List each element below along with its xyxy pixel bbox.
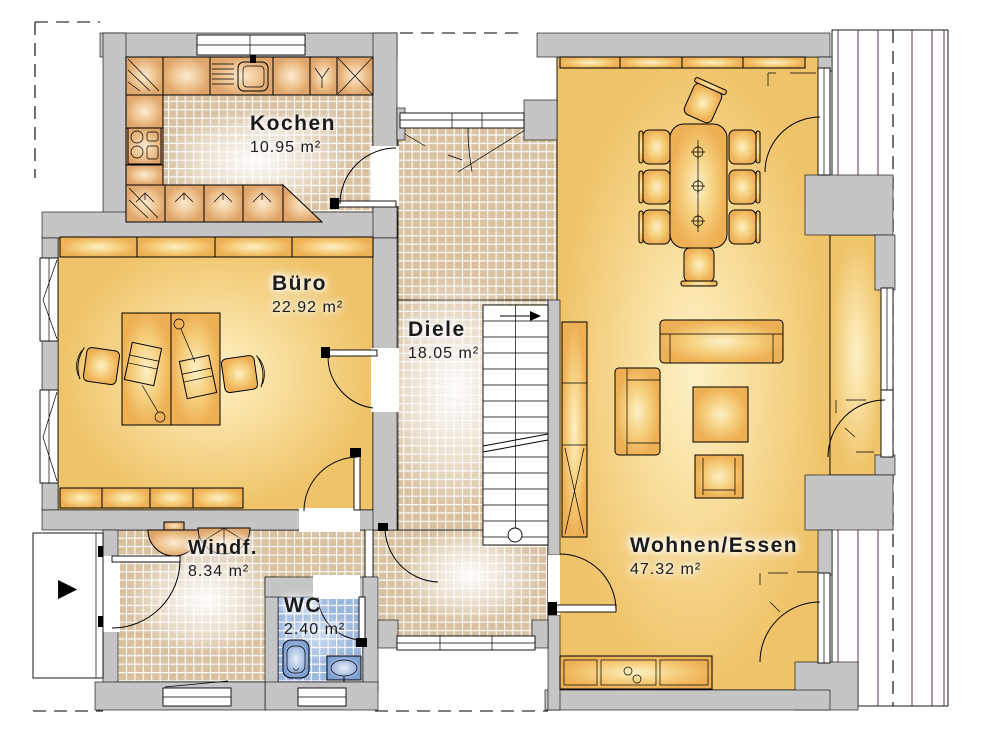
room-name: Kochen: [250, 112, 336, 136]
buero-window-2: [40, 390, 58, 483]
room-label-buero: Büro 22.92 m²: [272, 272, 343, 317]
room-area: 2.40 m²: [284, 621, 345, 639]
terrace-door-bottom-glazing: [818, 573, 830, 663]
desk-right-icon: [171, 313, 220, 425]
room-label-diele: Diele 18.05 m²: [408, 318, 479, 363]
room-name: Büro: [272, 272, 343, 296]
wc-south-window: [298, 688, 346, 706]
entrance-porch: [33, 533, 103, 678]
room-name: Wohnen/Essen: [630, 534, 798, 558]
staircase: [483, 305, 548, 545]
sideboard-top: [560, 57, 805, 68]
kitchen-window: [197, 35, 305, 55]
shelf-row-top: [60, 237, 373, 257]
desk-left-icon: [122, 313, 171, 425]
tall-shelf-icon: [562, 322, 587, 537]
room-area: 18.05 m²: [408, 345, 479, 363]
room-name: Diele: [408, 318, 479, 342]
terrace-door-top-glazing: [818, 68, 830, 175]
room-name: WC: [284, 594, 345, 618]
room-label-wohnen-essen: Wohnen/Essen 47.32 m²: [630, 534, 798, 579]
room-area: 8.34 m²: [188, 563, 258, 581]
sideboard-bottom: [560, 656, 712, 689]
dining-table-icon: [670, 124, 727, 248]
toilet-icon: [283, 640, 309, 678]
entrance-arrow-icon: ▶: [58, 576, 77, 601]
shelf-row-bottom: [60, 488, 243, 508]
room-area: 10.95 m²: [250, 139, 336, 157]
room-name: Windf.: [188, 537, 258, 560]
buero-window-1: [40, 258, 58, 341]
small-sofa-icon: [615, 368, 660, 455]
floor-plan-canvas: [0, 0, 1000, 754]
room-area: 47.32 m²: [630, 561, 798, 579]
diele-south-window: [397, 636, 535, 650]
washbasin-icon: [327, 656, 361, 682]
floor-plan-page: Kochen 10.95 m² Büro 22.92 m² Diele 18.0…: [0, 0, 1000, 754]
room-area: 22.92 m²: [272, 299, 343, 317]
room-label-kochen: Kochen 10.95 m²: [250, 112, 336, 157]
room-label-wc: WC 2.40 m²: [284, 594, 345, 639]
stool-icon: [695, 455, 743, 498]
sofa-icon: [660, 320, 783, 363]
bay-window-glazing: [881, 288, 893, 390]
coffee-table-icon: [693, 387, 748, 442]
room-label-windfang: Windf. 8.34 m²: [188, 537, 258, 581]
